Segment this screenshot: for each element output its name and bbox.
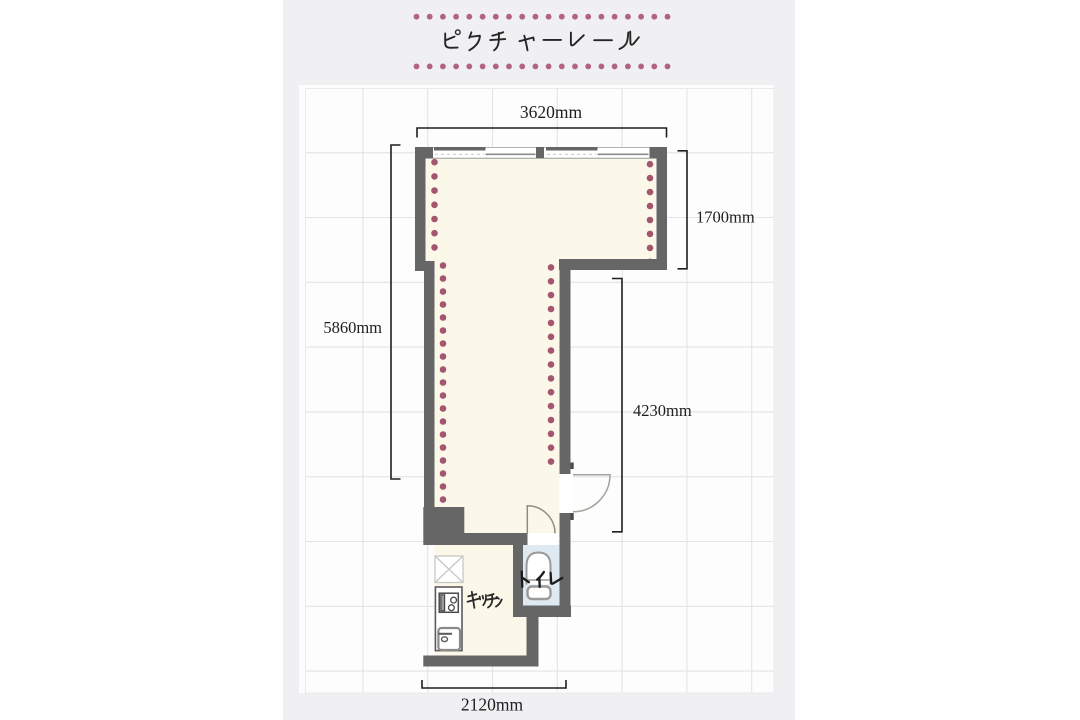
svg-text:3620mm: 3620mm — [520, 102, 583, 122]
svg-text:1700mm: 1700mm — [696, 208, 755, 227]
svg-text:5860mm: 5860mm — [323, 318, 382, 337]
svg-text:4230mm: 4230mm — [633, 401, 692, 420]
svg-text:2120mm: 2120mm — [461, 695, 524, 715]
